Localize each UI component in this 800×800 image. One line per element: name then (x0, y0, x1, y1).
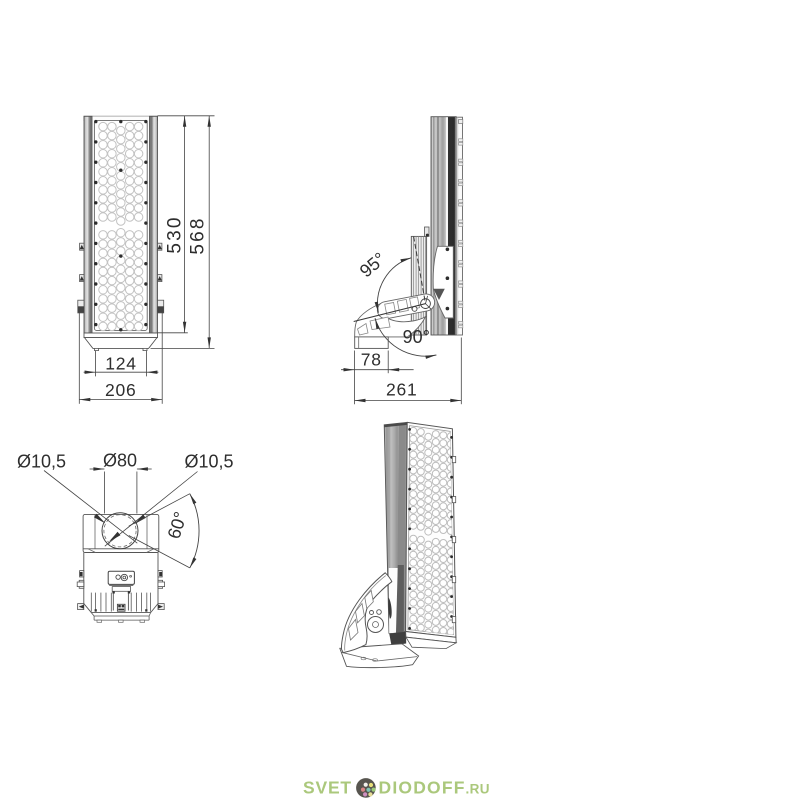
svg-text:78: 78 (361, 349, 382, 369)
svg-text:Ø80: Ø80 (103, 451, 137, 471)
svg-text:.RU: .RU (466, 782, 490, 797)
svg-text:DIODOFF: DIODOFF (379, 778, 466, 798)
svg-text:206: 206 (105, 380, 137, 400)
svg-text:530: 530 (164, 215, 185, 253)
svg-text:568: 568 (188, 216, 209, 254)
svg-text:124: 124 (105, 353, 137, 373)
svg-text:90°: 90° (403, 327, 430, 347)
svg-text:261: 261 (386, 379, 418, 399)
svg-text:Ø10,5: Ø10,5 (17, 452, 66, 472)
svg-text:SVET: SVET (303, 778, 352, 798)
svg-text:Ø10,5: Ø10,5 (184, 452, 233, 472)
